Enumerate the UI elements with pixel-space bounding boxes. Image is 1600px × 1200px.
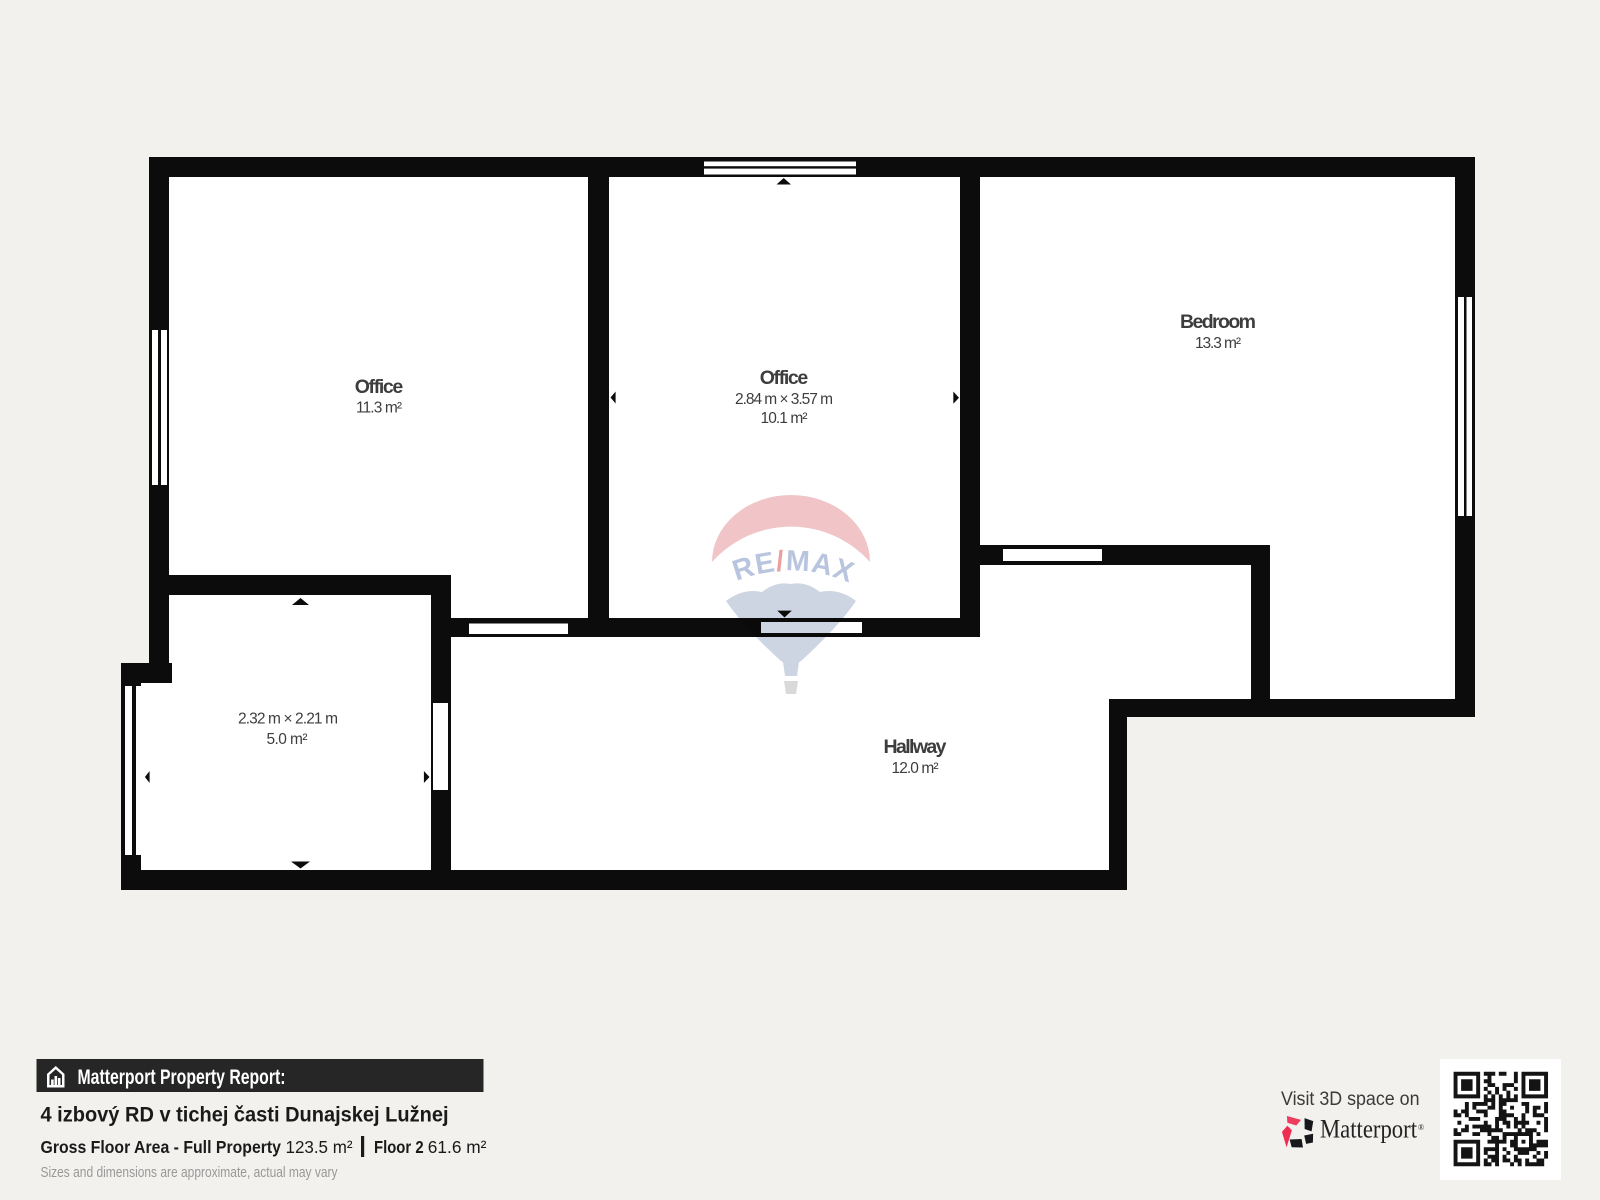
svg-text:2.84 m × 3.57 m: 2.84 m × 3.57 m xyxy=(735,391,833,408)
svg-text:Matterport Property Report:: Matterport Property Report: xyxy=(78,1066,286,1089)
svg-text:123.5 m²: 123.5 m² xyxy=(286,1137,353,1157)
svg-text:Floor 2: Floor 2 xyxy=(374,1137,424,1157)
svg-text:Office: Office xyxy=(355,376,404,398)
svg-text:Matterport: Matterport xyxy=(1320,1115,1418,1144)
svg-text:Sizes and dimensions are appro: Sizes and dimensions are approximate, ac… xyxy=(41,1164,338,1181)
svg-text:13.3 m²: 13.3 m² xyxy=(1195,335,1241,352)
svg-text:4 izbový RD v tichej časti Dun: 4 izbový RD v tichej časti Dunajskej Luž… xyxy=(41,1104,449,1127)
svg-text:11.3 m²: 11.3 m² xyxy=(356,400,402,417)
svg-text:2.32 m × 2.21 m: 2.32 m × 2.21 m xyxy=(238,711,338,728)
svg-text:12.0 m²: 12.0 m² xyxy=(892,760,939,777)
svg-text:Office: Office xyxy=(760,367,809,389)
svg-text:Hallway: Hallway xyxy=(884,736,947,758)
svg-text:Bedroom: Bedroom xyxy=(1180,311,1256,333)
svg-text:Gross Floor Area - Full Proper: Gross Floor Area - Full Property xyxy=(41,1137,282,1157)
svg-text:61.6 m²: 61.6 m² xyxy=(428,1137,487,1157)
svg-text:Visit 3D space on: Visit 3D space on xyxy=(1281,1089,1420,1110)
svg-text:10.1 m²: 10.1 m² xyxy=(761,410,808,427)
svg-text:®: ® xyxy=(1418,1123,1424,1132)
svg-text:5.0 m²: 5.0 m² xyxy=(267,731,308,748)
